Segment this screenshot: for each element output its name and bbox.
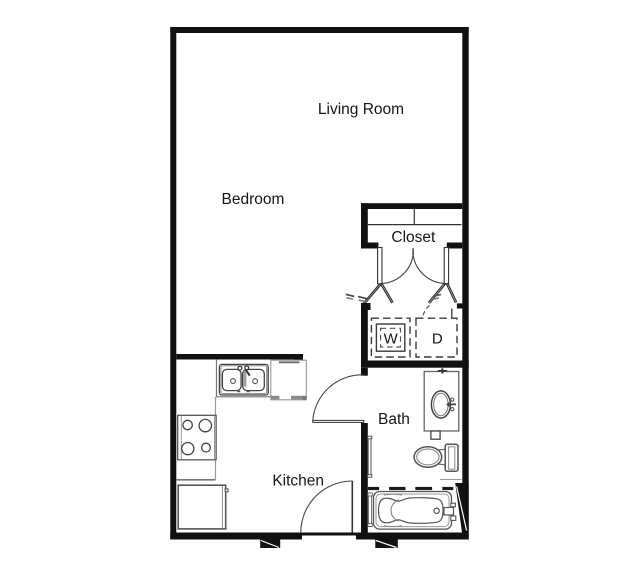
svg-text:Bedroom: Bedroom — [222, 191, 285, 208]
svg-text:D: D — [432, 331, 443, 348]
svg-text:Bath: Bath — [378, 411, 410, 428]
svg-text:Living Room: Living Room — [318, 101, 404, 118]
svg-text:Closet: Closet — [391, 229, 436, 246]
svg-text:Kitchen: Kitchen — [272, 473, 324, 490]
svg-text:W: W — [384, 331, 399, 348]
